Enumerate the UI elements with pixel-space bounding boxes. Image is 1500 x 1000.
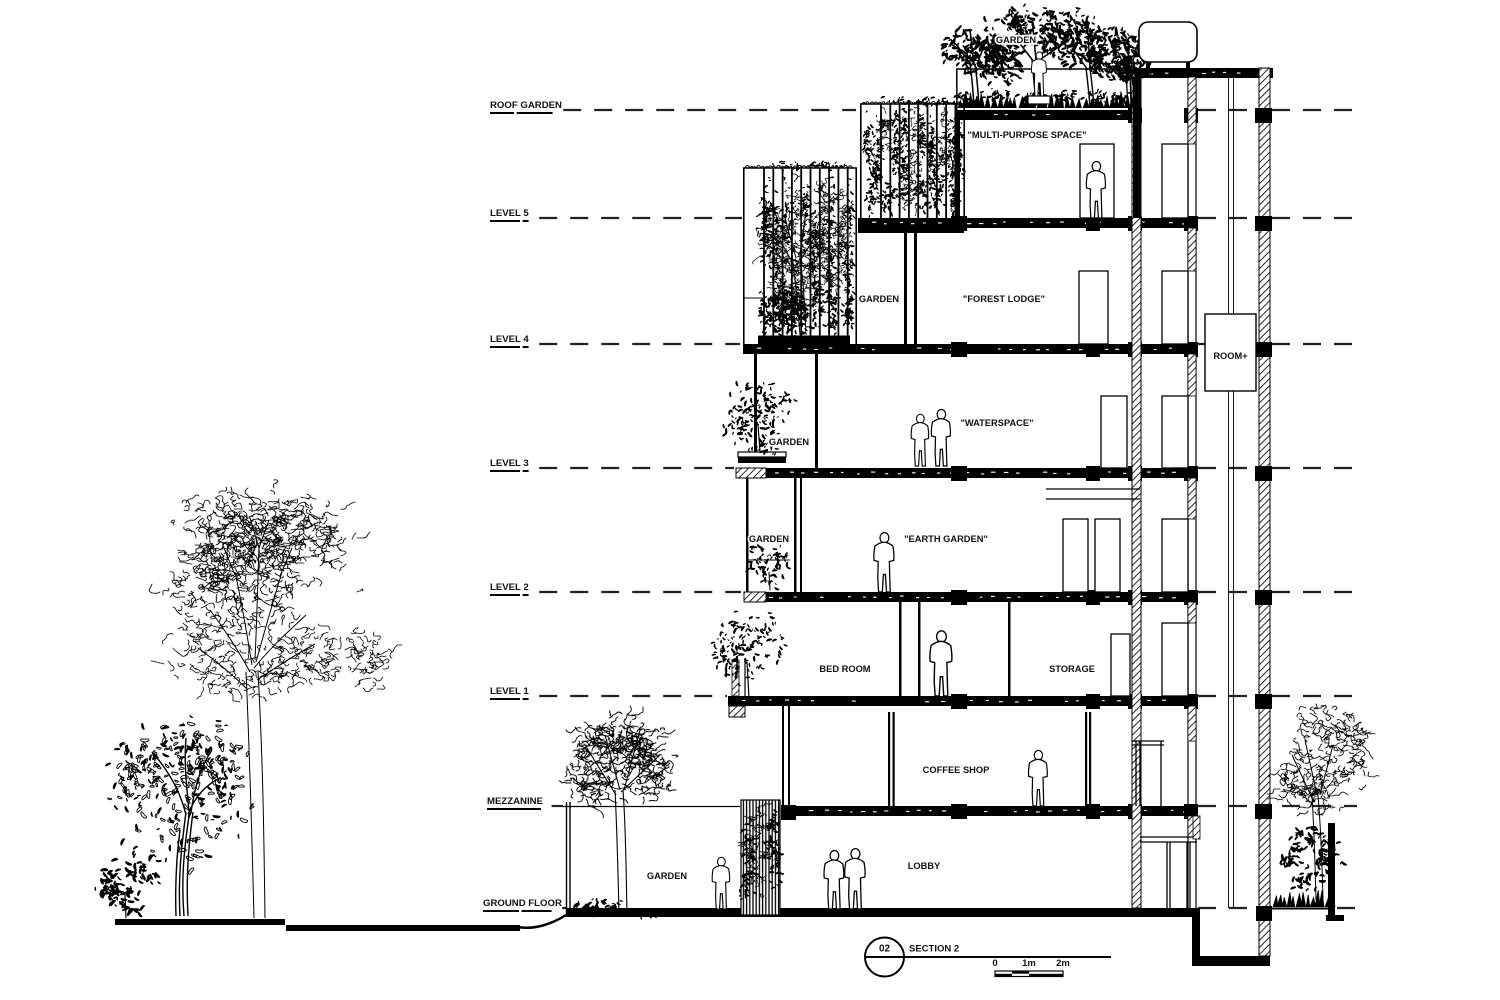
svg-text:"WATERSPACE": "WATERSPACE"	[960, 418, 1033, 428]
svg-text:GARDEN: GARDEN	[769, 437, 810, 447]
svg-text:LOBBY: LOBBY	[908, 861, 941, 871]
svg-text:LEVEL 1: LEVEL 1	[490, 686, 529, 697]
svg-text:LEVEL 4: LEVEL 4	[490, 334, 529, 345]
svg-text:"MULTI-PURPOSE SPACE": "MULTI-PURPOSE SPACE"	[967, 130, 1086, 140]
svg-text:GARDEN: GARDEN	[749, 534, 790, 544]
svg-text:SECTION 2: SECTION 2	[909, 944, 959, 955]
svg-text:GARDEN: GARDEN	[647, 871, 688, 881]
svg-text:GROUND FLOOR: GROUND FLOOR	[483, 898, 562, 909]
svg-text:LEVEL 3: LEVEL 3	[490, 458, 529, 469]
svg-text:MEZZANINE: MEZZANINE	[487, 796, 544, 807]
svg-text:2m: 2m	[1056, 958, 1070, 969]
svg-text:LEVEL 5: LEVEL 5	[490, 208, 529, 219]
svg-text:ROOM+: ROOM+	[1213, 351, 1248, 361]
svg-text:0: 0	[992, 958, 997, 969]
svg-text:GARDEN: GARDEN	[859, 294, 900, 304]
svg-text:"EARTH GARDEN": "EARTH GARDEN"	[904, 534, 988, 544]
svg-text:"FOREST LODGE": "FOREST LODGE"	[963, 294, 1045, 304]
svg-text:1m: 1m	[1022, 958, 1036, 969]
svg-text:LEVEL 2: LEVEL 2	[490, 582, 529, 593]
svg-text:02: 02	[879, 944, 891, 955]
svg-text:BED ROOM: BED ROOM	[819, 664, 870, 674]
svg-text:COFFEE SHOP: COFFEE SHOP	[923, 765, 990, 775]
svg-text:ROOF GARDEN: ROOF GARDEN	[490, 100, 562, 111]
svg-text:STORAGE: STORAGE	[1049, 664, 1095, 674]
svg-text:GARDEN: GARDEN	[996, 35, 1037, 45]
